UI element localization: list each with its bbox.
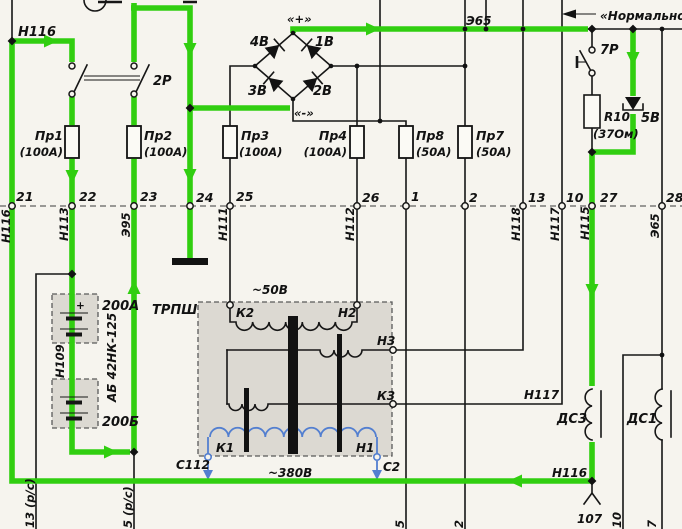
fuse-pr7-label: Пр7 xyxy=(476,128,504,143)
fuse-pr4-label: Пр4 xyxy=(319,128,347,143)
arrow-left-bottom-bus xyxy=(508,475,522,488)
terminal-24 xyxy=(187,203,193,209)
schematic-page: + Н116 2Р 7Р «+» «-» 4В 1В 3В 2В Э65 «Но… xyxy=(0,0,682,529)
fuse-pr3-label: Пр3 xyxy=(241,128,269,143)
wire-to-2p-left xyxy=(12,41,72,62)
terminal-k3-label: К3 xyxy=(377,389,395,403)
junction xyxy=(186,104,195,113)
resistor-r10-label: R10 xyxy=(604,110,630,124)
arrow-down-5v xyxy=(627,52,640,66)
choke-ds1-label: ДС1 xyxy=(626,412,657,427)
arrow-down-minus-wire xyxy=(184,169,197,183)
fuse-pr2-body xyxy=(127,126,141,158)
mode-note-label: «Нормально xyxy=(600,9,682,23)
resistor-r10-body xyxy=(584,95,600,128)
terminal-22-number: 22 xyxy=(79,189,96,204)
switch-2p-link xyxy=(84,76,140,80)
fuse-pr2-label: Пр2 xyxy=(144,128,172,143)
bus-e65-label: Э65 xyxy=(466,14,492,28)
resistor-r10-value: (37Ом) xyxy=(593,127,639,141)
choke-ds3-label: ДС3 xyxy=(556,412,587,427)
wire-label-h113: Н113 xyxy=(57,207,71,241)
core-bar-right xyxy=(337,334,342,452)
transformer-name: ТРПШ xyxy=(152,303,197,318)
wire-label-e95: Э95 xyxy=(119,213,133,237)
switch-contacts xyxy=(69,47,595,97)
wire-h118-path xyxy=(397,0,523,350)
wire-label-h112: Н112 xyxy=(343,207,357,241)
ds1-bypass-wire xyxy=(623,355,662,529)
bottom-wire-fragment-3: 10 xyxy=(610,512,624,528)
terminal-h2-label: Н2 xyxy=(338,306,356,320)
battery-type-label: АБ 42НК-125 xyxy=(105,313,119,403)
diode-3v-label: 3В xyxy=(248,84,267,99)
wire-label-h118: Н118 xyxy=(509,207,523,241)
wire-label-h116: Н116 xyxy=(0,209,13,243)
battery-bank-a-label: 200А xyxy=(102,299,139,314)
fuse-pr1-label: Пр1 xyxy=(35,128,63,143)
junction xyxy=(660,27,665,32)
ground-bar xyxy=(172,258,208,265)
terminal-25-number: 25 xyxy=(236,189,254,204)
switch-7p-contact xyxy=(589,47,595,53)
diode-2v-label: 2В xyxy=(313,84,332,99)
terminal-21 xyxy=(9,203,15,209)
bus-e65-green xyxy=(293,29,588,33)
terminal-21-number: 21 xyxy=(16,189,33,204)
terminal-h1-label: Н1 xyxy=(356,441,374,455)
terminal-28 xyxy=(659,203,665,209)
terminal-h3-label: Н3 xyxy=(377,334,395,348)
terminal-1-number: 1 xyxy=(411,189,420,204)
fuse-pr8-rating: (50А) xyxy=(416,145,451,159)
switch-2p-contact xyxy=(131,91,137,97)
terminal-k1-label: К1 xyxy=(216,441,234,455)
fuse-pr1-body xyxy=(65,126,79,158)
junction xyxy=(355,64,360,69)
junction xyxy=(378,119,383,124)
terminal-23-number: 23 xyxy=(140,189,157,204)
bridge-right-node xyxy=(329,64,334,69)
terminal-1 xyxy=(403,203,409,209)
wire-label-h117: Н117 xyxy=(548,207,562,241)
note-arrow-head xyxy=(562,10,576,19)
wire-h117-label: Н117 xyxy=(524,388,560,402)
secondary-voltage-label: ~50В xyxy=(252,283,288,297)
switch-7p-blade xyxy=(580,51,591,71)
bottom-wire-fragment-4: 7 xyxy=(645,520,659,528)
junction xyxy=(629,25,638,34)
diode-3v-triangle xyxy=(269,78,284,92)
arrow-down-h115 xyxy=(586,284,599,298)
bridge-minus-label: «-» xyxy=(294,106,314,120)
bottom-wire-fragment-2: 2 xyxy=(452,520,466,528)
junction xyxy=(463,64,468,69)
primary-voltage-label: ~380В xyxy=(268,466,312,480)
switch-7p-label: 7Р xyxy=(600,43,619,58)
wire-label-h111: Н111 xyxy=(216,207,230,241)
diode-4v-label: 4В xyxy=(249,35,269,50)
connector-107-label: 107 xyxy=(577,512,603,526)
terminal-k2 xyxy=(227,302,233,308)
fuse-pr4-rating: (100А) xyxy=(304,145,347,159)
switch-2p-label: 2Р xyxy=(153,74,172,89)
wire-label-h115: Н115 xyxy=(578,206,592,240)
bridge-plus-node xyxy=(291,31,296,36)
radio-feed-label-left: 13 (р/с) xyxy=(23,478,37,528)
diode-1v-label: 1В xyxy=(315,35,334,50)
wire-h116-bottom-label: Н116 xyxy=(552,466,587,480)
terminal-27-number: 27 xyxy=(600,190,618,205)
junction xyxy=(588,25,597,34)
arrow-right-e65-bus xyxy=(366,23,380,36)
junction xyxy=(8,37,17,46)
terminal-10-number: 10 xyxy=(566,190,584,205)
wire-label-e65: Э65 xyxy=(648,214,662,238)
arrow-right-battery-out xyxy=(104,446,118,459)
fuse-pr3-body xyxy=(223,126,237,158)
arrow-up-e95 xyxy=(128,280,141,294)
diode-5v-label: 5В xyxy=(641,111,660,126)
bridge-plus-label: «+» xyxy=(287,12,312,26)
core-bar-left xyxy=(244,388,249,452)
switch-2p-contact xyxy=(69,63,75,69)
terminal-2 xyxy=(462,203,468,209)
wire-label-h116-top: Н116 xyxy=(18,25,56,40)
terminal-2-number: 2 xyxy=(469,190,478,205)
bottom-wire-fragment-1: 5 xyxy=(393,520,407,528)
junction xyxy=(130,448,139,457)
battery-plus-sign: + xyxy=(76,300,85,312)
fuse-pr4-body xyxy=(350,126,364,158)
junction xyxy=(588,148,597,157)
fuse-pr7-rating: (50А) xyxy=(476,145,511,159)
terminal-28-number: 28 xyxy=(666,190,682,205)
bridge-minus-node xyxy=(291,97,296,102)
junction xyxy=(660,353,665,358)
switch-7p-contact xyxy=(589,70,595,76)
switch-2p-blades xyxy=(74,65,149,92)
fuse-pr7-body xyxy=(458,126,472,158)
junction xyxy=(68,270,77,279)
terminal-c2 xyxy=(374,454,380,460)
terminal-23 xyxy=(131,203,137,209)
radio-feed-label-mid: 5 (р/с) xyxy=(121,486,135,528)
junction xyxy=(521,27,526,32)
fuse-pr8-body xyxy=(399,126,413,158)
circuit-schematic: + Н116 2Р 7Р «+» «-» 4В 1В 3В 2В Э65 «Но… xyxy=(0,0,682,529)
core-bar-center xyxy=(288,316,298,454)
bridge-left-node xyxy=(253,64,258,69)
connector-107-symbol xyxy=(584,483,600,504)
terminal-24-number: 24 xyxy=(196,190,213,205)
terminal-26-number: 26 xyxy=(362,190,380,205)
switch-2p-contact xyxy=(69,91,75,97)
terminal-c2-label: С2 xyxy=(383,460,400,474)
fuse-pr1-rating: (100А) xyxy=(20,145,63,159)
fuse-pr2-rating: (100А) xyxy=(144,145,187,159)
fuse-pr3-rating: (100А) xyxy=(239,145,282,159)
terminal-c112-label: С112 xyxy=(176,458,210,472)
battery-bank-b-label: 200Б xyxy=(102,415,139,430)
fuse-pr8-label: Пр8 xyxy=(416,128,444,143)
arrow-down-top-u xyxy=(184,43,197,57)
terminal-13-number: 13 xyxy=(528,190,545,205)
battery-wire-label: Н109 xyxy=(53,344,67,378)
diode-5v-triangle xyxy=(625,97,641,110)
switch-2p-contact xyxy=(131,63,137,69)
terminal-k2-label: К2 xyxy=(236,306,254,320)
arrow-down-pr1 xyxy=(66,170,79,184)
junction xyxy=(588,477,597,486)
